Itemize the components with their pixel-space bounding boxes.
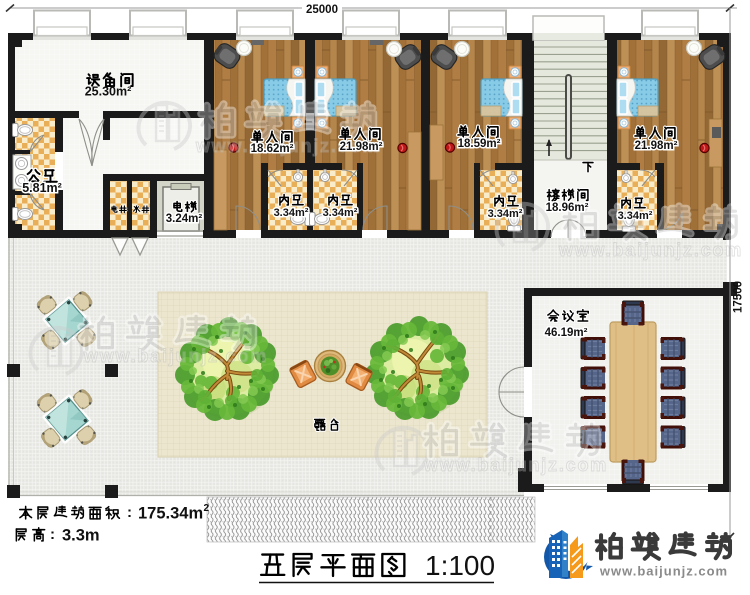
svg-text:www.baijunjz.com: www.baijunjz.com [423, 455, 608, 475]
svg-text:www.baijunjz.com: www.baijunjz.com [83, 346, 268, 366]
svg-text:25.30m²: 25.30m² [85, 85, 132, 99]
svg-text:3.34m²: 3.34m² [274, 207, 309, 219]
svg-text:18.96m²: 18.96m² [546, 202, 589, 214]
svg-text:www.baijunjz.com: www.baijunjz.com [599, 564, 728, 579]
svg-text:3.34m²: 3.34m² [323, 207, 358, 219]
svg-text:www.baijunjz.com: www.baijunjz.com [558, 240, 743, 260]
svg-text:25000: 25000 [306, 4, 338, 16]
svg-text:21.98m²: 21.98m² [635, 140, 678, 152]
svg-text:3.34m²: 3.34m² [488, 208, 523, 220]
svg-text:2: 2 [204, 503, 210, 514]
svg-text:46.19m²: 46.19m² [545, 327, 588, 339]
svg-text:1:100: 1:100 [425, 550, 495, 581]
svg-text:21.98m²: 21.98m² [340, 141, 383, 153]
svg-text:175.34m: 175.34m [138, 505, 203, 523]
svg-text:3.34m²: 3.34m² [618, 210, 653, 222]
svg-text:3.3m: 3.3m [62, 527, 100, 545]
svg-text:18.59m²: 18.59m² [458, 138, 501, 150]
svg-text:17500: 17500 [733, 281, 745, 313]
svg-text::: : [50, 526, 55, 543]
svg-text:3.24m²: 3.24m² [166, 213, 203, 225]
svg-text::: : [127, 504, 132, 521]
svg-text:5.81m²: 5.81m² [22, 181, 62, 195]
svg-text:18.62m²: 18.62m² [251, 143, 294, 155]
